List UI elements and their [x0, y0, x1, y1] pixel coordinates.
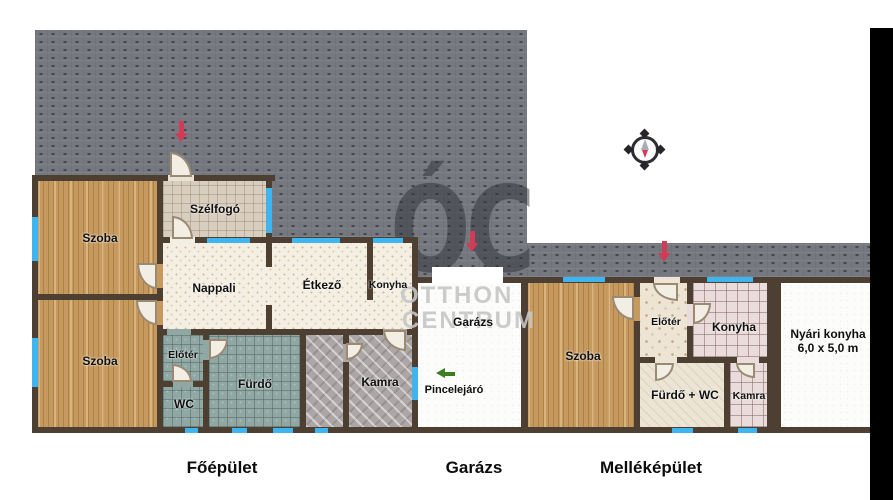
room-label-nyari-konyha: Nyári konyha 6,0 x 5,0 m [790, 328, 865, 356]
window-marker [373, 238, 403, 243]
wall-segment [300, 329, 306, 433]
watermark-brand-line1: OTTHON [400, 284, 513, 308]
room-label-furdo: Fürdő [238, 377, 272, 391]
window-marker [412, 367, 418, 400]
window-marker [266, 188, 272, 233]
room-label-etkezo: Étkező [303, 278, 342, 292]
paved-path [527, 243, 870, 277]
door-opening [157, 264, 163, 288]
screen-black-edge [870, 28, 893, 500]
wall-segment [367, 243, 373, 300]
wall-segment [32, 175, 38, 433]
wall-segment [157, 329, 418, 335]
building-label-main: Főépület [152, 458, 292, 478]
nyari-konyha-size: 6,0 x 5,0 m [790, 342, 865, 356]
entrance-arrow-icon [466, 231, 479, 252]
compass-rose-icon [622, 127, 670, 175]
entrance-arrow-icon [175, 121, 188, 142]
room-label-eloter-main: Előtér [168, 349, 198, 361]
window-marker [707, 277, 753, 282]
door-opening [634, 297, 640, 321]
wall-segment [767, 277, 781, 433]
room-label-nappali: Nappali [192, 281, 235, 295]
arrow-head [658, 253, 670, 262]
cellar-direction-arrow-icon [436, 368, 456, 379]
wall-segment [521, 277, 528, 433]
building-label-outbuilding: Melléképület [561, 458, 741, 478]
entrance-arrow-icon [658, 241, 671, 262]
wall-segment [32, 175, 275, 181]
compass-needle-north [641, 139, 649, 150]
door-opening [432, 267, 503, 283]
room-label-pincelejaro: Pincelejáró [425, 384, 484, 396]
room-label-szoba-bottom: Szoba [82, 354, 117, 368]
room-label-furdo-wc-outbuilding: Fürdő + WC [651, 388, 719, 402]
room-label-kamra-outbuilding: Kamra [733, 390, 766, 402]
compass-needle-south [642, 150, 648, 158]
window-marker [315, 428, 328, 433]
window-marker [185, 428, 198, 433]
window-marker [32, 338, 38, 387]
window-marker [563, 277, 605, 282]
room-floor-corridor [306, 335, 343, 427]
arrow-head [466, 243, 478, 252]
door-opening [167, 329, 191, 335]
room-label-garage: Garázs [453, 315, 493, 329]
window-marker [32, 217, 38, 261]
room-label-szelfogo: Szélfogó [190, 202, 240, 216]
window-marker [232, 428, 247, 433]
room-label-eloter-outbuilding: Előtér [651, 316, 681, 328]
nyari-konyha-name: Nyári konyha [790, 328, 865, 342]
arrow-shaft [444, 372, 455, 376]
room-label-konyha-main: Konyha [369, 279, 408, 291]
room-label-wc: WC [174, 397, 194, 411]
window-marker [738, 428, 757, 433]
window-marker [207, 238, 250, 243]
window-marker [273, 428, 293, 433]
room-label-szoba-outbuilding: Szoba [565, 349, 600, 363]
room-label-kamra-main: Kamra [361, 375, 398, 389]
room-label-szoba-top: Szoba [82, 231, 117, 245]
arrow-head [175, 133, 187, 142]
building-label-garage: Garázs [404, 458, 544, 478]
window-marker [292, 238, 340, 243]
door-opening [157, 301, 163, 325]
wall-segment [412, 237, 418, 433]
room-label-konyha-outbuilding: Konyha [712, 320, 756, 334]
wall-segment [266, 243, 272, 267]
wall-segment [724, 363, 730, 433]
floor-plan-canvas: ÓC OTTHON CENTRUM Szoba Szoba Szélfogó N… [0, 0, 893, 500]
wall-segment [266, 305, 272, 329]
window-marker [672, 428, 693, 433]
